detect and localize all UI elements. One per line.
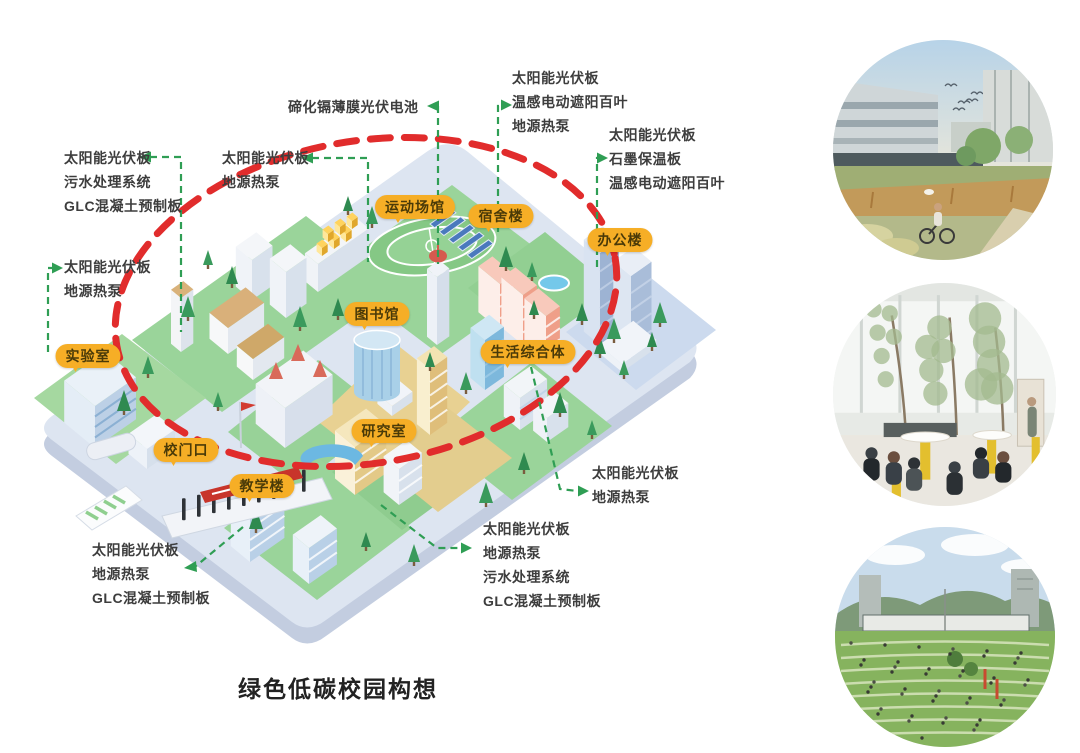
annotation-mid-left: 太阳能光伏板 地源热泵 <box>222 146 309 194</box>
standing-figure <box>1027 397 1037 437</box>
building-label-teaching-building: 教学楼 <box>230 474 295 498</box>
green-campus-infographic: 运动场馆 宿舍楼 办公楼 图书馆 生活综合体 实验室 校门口 教学楼 研究室 太… <box>0 0 1080 753</box>
building-label-life-complex: 生活综合体 <box>481 340 576 364</box>
annotation-bottom-center: 太阳能光伏板 地源热泵 污水处理系统 GLC混凝土预制板 <box>483 517 601 613</box>
campus-pond <box>539 276 569 291</box>
diagram-title: 绿色低碳校园构想 <box>238 670 438 704</box>
annotation-right: 太阳能光伏板 石墨保温板 温感电动遮阳百叶 <box>609 123 725 195</box>
building-label-office-building: 办公楼 <box>588 228 653 252</box>
building-label-laboratory: 实验室 <box>56 344 121 368</box>
library-building <box>354 331 400 402</box>
annotation-top-center: 碲化镉薄膜光伏电池 <box>288 95 419 119</box>
lawn <box>835 631 1055 747</box>
annotation-left: 太阳能光伏板 地源热泵 <box>64 255 151 303</box>
building-label-library: 图书馆 <box>345 302 410 326</box>
building-label-sports-venue: 运动场馆 <box>375 195 455 219</box>
photo-campus-wetland <box>833 40 1053 260</box>
annotation-mid-right: 太阳能光伏板 地源热泵 <box>592 461 679 509</box>
long-building <box>863 615 1029 631</box>
building-label-dormitory: 宿舍楼 <box>469 204 534 228</box>
annotation-bottom-left: 太阳能光伏板 地源热泵 GLC混凝土预制板 <box>92 538 210 610</box>
building-label-research-lab: 研究室 <box>352 419 417 443</box>
photo-atrium-cafe <box>833 283 1056 506</box>
building-label-school-gate: 校门口 <box>154 438 219 462</box>
photo-terraced-lawn <box>835 527 1055 747</box>
annotation-top-left: 太阳能光伏板 污水处理系统 GLC混凝土预制板 <box>64 146 182 218</box>
